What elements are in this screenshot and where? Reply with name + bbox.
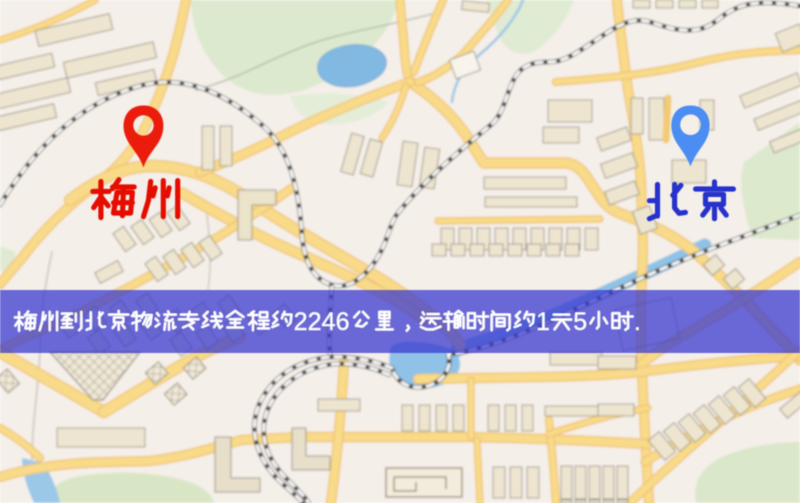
svg-text:4: 4	[322, 308, 336, 336]
svg-text:2: 2	[308, 308, 322, 336]
svg-text:2: 2	[294, 308, 308, 336]
svg-text:1: 1	[536, 308, 550, 336]
svg-text:5: 5	[573, 308, 587, 336]
svg-text:6: 6	[336, 308, 350, 336]
svg-text:.: .	[634, 308, 641, 336]
